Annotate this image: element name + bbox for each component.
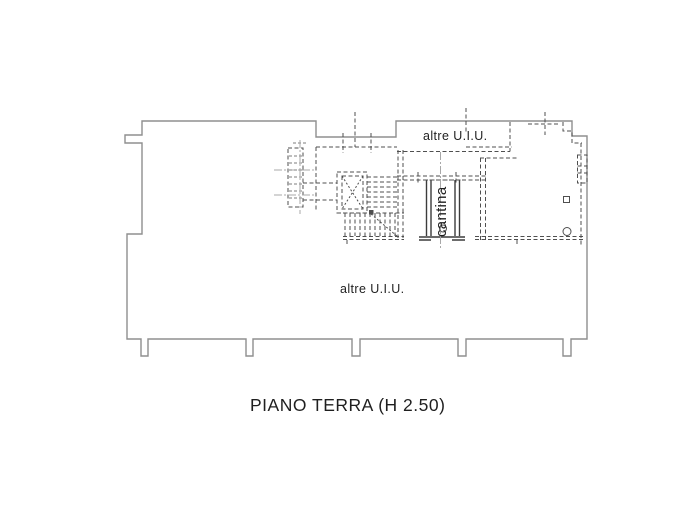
floor-plan-sheet: altre U.I.U. altre U.I.U. cantina PIANO … xyxy=(0,0,692,518)
elevator-x xyxy=(342,176,363,209)
elevator-shaft xyxy=(337,172,374,215)
right-room-dashed xyxy=(475,122,587,247)
stairs-upper-flight xyxy=(367,150,403,238)
stairs-lower-flight xyxy=(337,213,404,244)
label-other-unit-top: altre U.I.U. xyxy=(423,129,488,143)
duct-shaft xyxy=(274,140,314,214)
right-wall-window-marks xyxy=(578,155,588,183)
label-other-unit-main: altre U.I.U. xyxy=(340,282,405,296)
plan-caption: PIANO TERRA (H 2.50) xyxy=(250,395,445,415)
floor-symbol-circle xyxy=(563,228,571,236)
building-outline xyxy=(125,121,587,356)
wall-pier-symbol xyxy=(564,197,570,203)
label-cantina: cantina xyxy=(433,186,450,237)
floor-plan-drawing: altre U.I.U. altre U.I.U. cantina PIANO … xyxy=(0,0,692,518)
